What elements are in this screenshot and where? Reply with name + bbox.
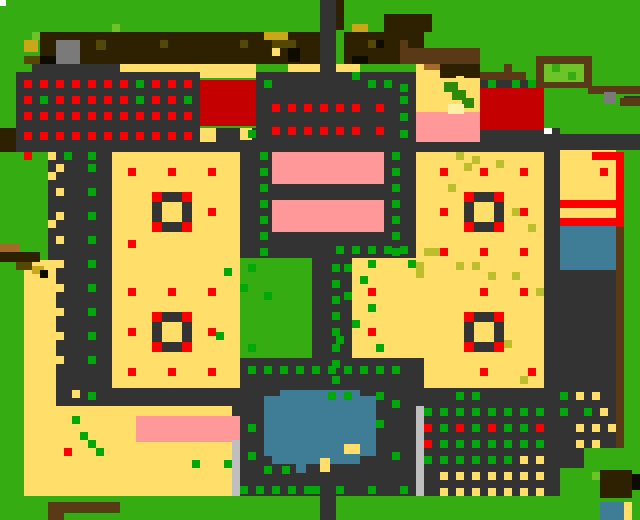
- map-tile: [48, 316, 56, 324]
- map-tile: [88, 188, 96, 196]
- map-tile: [424, 456, 432, 464]
- map-tile: [632, 474, 640, 490]
- map-tile: [456, 456, 464, 464]
- map-tile: [184, 112, 192, 120]
- map-tile: [368, 246, 376, 254]
- map-tile: [494, 342, 504, 352]
- map-tile: [120, 132, 128, 140]
- map-tile: [0, 0, 6, 6]
- map-tile: [72, 112, 80, 120]
- map-tile: [416, 406, 424, 496]
- map-tile: [24, 112, 32, 120]
- map-tile: [272, 456, 360, 464]
- map-tile: [620, 98, 640, 106]
- map-tile: [224, 268, 232, 276]
- map-tile: [472, 456, 480, 464]
- map-tile: [472, 472, 480, 480]
- map-tile: [440, 248, 448, 256]
- map-tile: [474, 322, 494, 342]
- map-tile: [560, 134, 640, 150]
- map-tile: [360, 366, 368, 374]
- map-tile: [392, 400, 400, 408]
- map-tile: [72, 80, 80, 88]
- map-tile: [152, 342, 162, 352]
- map-tile: [72, 132, 80, 140]
- map-tile: [272, 48, 280, 56]
- map-tile: [472, 440, 480, 448]
- map-tile: [104, 132, 112, 140]
- map-tile: [32, 32, 40, 40]
- map-tile: [160, 406, 184, 416]
- map-tile: [376, 344, 384, 352]
- map-tile: [88, 132, 96, 140]
- map-tile: [128, 368, 136, 376]
- map-tile: [604, 92, 616, 104]
- map-tile: [592, 424, 600, 432]
- map-tile: [464, 312, 474, 322]
- map-tile: [504, 488, 512, 496]
- map-tile: [504, 64, 512, 72]
- map-tile: [152, 192, 162, 202]
- map-tile: [88, 260, 96, 268]
- map-tile: [24, 96, 32, 104]
- map-tile: [88, 308, 96, 316]
- map-tile: [136, 416, 240, 442]
- map-tile: [200, 64, 256, 78]
- map-tile: [0, 128, 16, 152]
- map-tile: [472, 262, 480, 270]
- map-tile: [344, 264, 352, 272]
- map-tile: [344, 292, 352, 300]
- map-tile: [368, 260, 376, 268]
- map-tile: [480, 368, 488, 376]
- map-tile: [440, 408, 448, 416]
- map-tile: [208, 328, 216, 336]
- map-tile: [32, 64, 120, 72]
- map-tile: [600, 502, 624, 520]
- map-tile: [24, 392, 232, 496]
- map-tile: [528, 80, 536, 88]
- map-tile: [56, 188, 64, 196]
- map-tile: [208, 168, 216, 176]
- map-tile: [464, 163, 472, 171]
- map-tile: [88, 332, 96, 340]
- map-tile: [88, 112, 96, 120]
- map-tile: [40, 132, 48, 140]
- map-tile: [304, 104, 312, 112]
- map-tile: [392, 200, 400, 208]
- map-tile: [248, 366, 256, 374]
- map-tile: [184, 132, 192, 140]
- map-tile: [192, 460, 200, 468]
- map-tile: [504, 340, 512, 348]
- map-tile: [182, 222, 192, 232]
- map-tile: [56, 80, 64, 88]
- map-tile: [184, 80, 192, 88]
- map-tile: [208, 208, 216, 216]
- map-tile: [168, 80, 176, 88]
- map-tile: [152, 132, 160, 140]
- map-tile: [280, 366, 288, 374]
- map-tile: [480, 72, 526, 80]
- map-tile: [264, 292, 272, 300]
- map-tile: [392, 452, 400, 460]
- map-tile: [376, 366, 384, 374]
- map-tile: [296, 464, 306, 473]
- map-tile: [248, 130, 256, 138]
- map-tile: [96, 40, 106, 50]
- map-tile: [256, 486, 264, 494]
- map-tile: [168, 132, 176, 140]
- map-tile: [512, 272, 520, 280]
- map-tile: [560, 408, 568, 416]
- map-tile: [216, 332, 224, 340]
- map-tile: [392, 184, 400, 192]
- map-tile: [376, 127, 384, 135]
- map-tile: [456, 472, 464, 480]
- map-tile: [488, 472, 496, 480]
- map-tile: [56, 356, 64, 364]
- map-tile: [88, 356, 96, 364]
- map-tile: [332, 328, 340, 336]
- map-tile: [368, 80, 376, 88]
- map-tile: [152, 222, 162, 232]
- map-tile: [352, 246, 360, 254]
- map-tile: [112, 24, 120, 32]
- map-tile: [152, 112, 160, 120]
- map-tile: [200, 80, 256, 126]
- map-tile: [504, 456, 512, 464]
- map-tile: [392, 366, 400, 374]
- map-tile: [128, 168, 136, 176]
- map-tile: [336, 0, 344, 30]
- map-tile: [544, 134, 560, 270]
- map-tile: [16, 262, 32, 270]
- map-tile: [494, 222, 504, 232]
- map-tile: [336, 486, 344, 494]
- map-tile: [40, 270, 48, 278]
- map-tile: [504, 440, 512, 448]
- map-tile: [0, 252, 40, 262]
- map-tile: [480, 168, 488, 176]
- map-tile: [288, 104, 296, 112]
- map-tile: [240, 284, 248, 292]
- map-tile: [24, 132, 32, 140]
- map-tile: [64, 152, 72, 160]
- map-tile: [560, 226, 616, 270]
- map-tile: [456, 152, 464, 160]
- map-tile: [260, 232, 268, 240]
- map-tile: [24, 40, 38, 52]
- map-tile: [552, 64, 560, 72]
- map-tile: [40, 112, 48, 120]
- map-tile: [56, 212, 64, 220]
- map-tile: [88, 284, 96, 292]
- map-tile: [56, 40, 80, 64]
- map-tile: [576, 424, 584, 432]
- map-tile: [182, 312, 192, 322]
- map-tile: [208, 288, 216, 296]
- map-tile: [488, 456, 496, 464]
- map-tile: [448, 184, 456, 192]
- map-tile: [536, 408, 544, 416]
- map-tile: [272, 127, 280, 135]
- map-tile: [600, 408, 608, 416]
- map-tile: [592, 392, 600, 400]
- map-tile: [128, 240, 136, 248]
- map-tile: [592, 152, 616, 160]
- map-tile: [296, 366, 304, 374]
- map-tile: [392, 248, 400, 256]
- map-tile: [248, 264, 256, 272]
- map-tile: [376, 420, 384, 428]
- map-tile: [320, 474, 336, 520]
- map-tile: [576, 392, 584, 400]
- map-tile: [352, 320, 360, 328]
- map-tile: [520, 408, 528, 416]
- map-tile: [504, 424, 512, 432]
- map-tile: [520, 488, 528, 496]
- map-tile: [448, 104, 464, 114]
- map-tile: [160, 40, 168, 48]
- map-tile: [568, 72, 576, 80]
- map-tile: [488, 408, 496, 416]
- map-tile: [264, 366, 272, 374]
- map-tile: [464, 222, 474, 232]
- map-tile: [332, 264, 340, 272]
- map-tile: [536, 472, 544, 480]
- map-tile: [592, 472, 600, 480]
- map-tile: [282, 466, 290, 474]
- map-tile: [260, 248, 268, 256]
- map-tile: [536, 488, 544, 496]
- map-tile: [40, 96, 48, 104]
- map-tile: [520, 168, 528, 176]
- map-tile: [456, 424, 464, 432]
- map-tile: [544, 270, 616, 390]
- map-tile: [456, 488, 464, 496]
- map-tile: [520, 424, 528, 432]
- map-tile: [472, 392, 480, 400]
- map-tile: [352, 24, 368, 32]
- map-tile: [608, 424, 616, 432]
- map-tile: [328, 366, 336, 374]
- map-tile: [272, 104, 280, 112]
- map-tile: [416, 262, 424, 278]
- map-tile: [80, 432, 88, 440]
- map-tile: [272, 152, 384, 184]
- map-tile: [260, 152, 268, 160]
- map-tile: [424, 424, 432, 432]
- map-tile: [440, 208, 448, 216]
- map-tile: [312, 366, 320, 374]
- map-tile: [152, 312, 162, 322]
- map-tile: [400, 48, 480, 64]
- map-tile: [320, 127, 328, 135]
- map-tile: [616, 152, 624, 227]
- map-tile: [520, 376, 528, 384]
- map-tile: [332, 312, 340, 320]
- map-tile: [112, 152, 240, 390]
- map-tile: [600, 168, 608, 176]
- map-tile: [120, 80, 128, 88]
- map-tile: [472, 408, 480, 416]
- map-tile: [260, 168, 268, 176]
- map-tile: [400, 96, 408, 104]
- map-tile: [494, 312, 504, 322]
- map-tile: [288, 486, 296, 494]
- map-tile: [520, 472, 528, 480]
- map-tile: [352, 127, 360, 135]
- map-tile: [260, 216, 268, 224]
- map-tile: [472, 156, 480, 164]
- map-tile: [24, 152, 32, 160]
- map-tile: [232, 440, 240, 496]
- map-tile: [260, 184, 268, 192]
- map-tile: [376, 392, 384, 400]
- map-tile: [336, 336, 344, 344]
- map-tile: [248, 344, 256, 352]
- map-tile: [248, 452, 256, 460]
- map-tile: [240, 40, 248, 48]
- map-tile: [480, 288, 488, 296]
- map-tile: [336, 127, 344, 135]
- map-tile: [182, 192, 192, 202]
- map-tile: [472, 424, 480, 432]
- map-tile: [288, 48, 300, 62]
- map-tile: [392, 216, 400, 224]
- map-tile: [72, 416, 80, 424]
- map-tile: [288, 64, 320, 72]
- map-tile: [616, 388, 624, 448]
- map-tile: [136, 96, 144, 104]
- map-tile: [456, 408, 464, 416]
- map-tile: [56, 308, 64, 316]
- map-tile: [96, 448, 104, 456]
- map-tile: [152, 96, 160, 104]
- map-tile: [520, 440, 528, 448]
- map-tile: [400, 130, 408, 138]
- map-tile: [440, 472, 448, 480]
- map-tile: [136, 80, 144, 88]
- map-tile: [536, 456, 544, 464]
- map-tile: [48, 364, 56, 372]
- map-tile: [520, 288, 528, 296]
- map-tile: [168, 96, 176, 104]
- map-tile: [56, 132, 64, 140]
- map-tile: [600, 470, 632, 498]
- map-tile: [88, 236, 96, 244]
- map-tile: [264, 32, 288, 40]
- map-tile: [56, 388, 240, 406]
- map-tile: [352, 72, 360, 80]
- map-tile: [424, 64, 440, 70]
- map-tile: [488, 440, 496, 448]
- map-tile: [56, 260, 64, 268]
- map-tile: [376, 40, 384, 48]
- map-tile: [352, 56, 368, 64]
- map-tile: [584, 448, 640, 468]
- map-tile: [456, 440, 464, 448]
- map-tile: [560, 200, 616, 208]
- map-tile: [480, 248, 488, 256]
- map-tile: [488, 80, 496, 88]
- map-tile: [512, 80, 520, 88]
- map-tile: [304, 486, 312, 494]
- map-tile: [48, 268, 56, 276]
- map-tile: [536, 82, 592, 88]
- map-tile: [48, 172, 56, 180]
- map-tile: [392, 232, 400, 240]
- map-tile: [384, 246, 392, 254]
- map-tile: [504, 472, 512, 480]
- map-tile: [400, 84, 408, 92]
- map-tile: [560, 208, 616, 218]
- map-tile: [544, 128, 552, 134]
- map-tile: [536, 288, 544, 296]
- map-tile: [272, 200, 384, 232]
- map-tile: [56, 332, 64, 340]
- map-tile: [24, 260, 56, 392]
- map-tile: [440, 456, 448, 464]
- map-tile: [440, 440, 448, 448]
- map-tile: [520, 248, 528, 256]
- map-tile: [182, 342, 192, 352]
- map-tile: [384, 14, 432, 32]
- map-tile: [168, 112, 176, 120]
- map-tile: [528, 224, 536, 232]
- map-tile: [488, 488, 496, 496]
- map-tile: [488, 272, 496, 280]
- map-tile: [40, 80, 48, 88]
- map-tile: [424, 408, 432, 416]
- map-tile: [72, 390, 80, 398]
- map-tile: [464, 192, 474, 202]
- map-tile: [320, 458, 330, 472]
- map-tile: [408, 260, 416, 268]
- map-tile: [472, 488, 480, 496]
- map-tile: [104, 112, 112, 120]
- map-tile: [424, 440, 432, 448]
- map-tile: [512, 208, 520, 216]
- map-tile: [416, 112, 480, 142]
- map-tile: [104, 96, 112, 104]
- map-tile: [184, 96, 192, 104]
- map-tile: [88, 440, 96, 448]
- map-tile: [352, 104, 360, 112]
- map-tile: [336, 104, 344, 112]
- map-tile: [248, 424, 256, 432]
- map-tile: [520, 208, 528, 216]
- map-tile: [392, 168, 400, 176]
- map-tile: [264, 466, 272, 474]
- map-tile: [48, 502, 64, 520]
- map-tile: [208, 368, 216, 376]
- map-tile: [88, 392, 96, 400]
- map-tile: [56, 164, 64, 172]
- map-tile: [332, 376, 340, 384]
- map-tile: [480, 88, 544, 130]
- map-tile: [344, 444, 360, 454]
- map-tile: [88, 164, 96, 172]
- map-tile: [120, 112, 128, 120]
- game-map[interactable]: [0, 0, 640, 520]
- map-tile: [464, 342, 474, 352]
- map-tile: [384, 80, 392, 88]
- map-tile: [576, 440, 584, 448]
- map-tile: [344, 366, 352, 374]
- map-tile: [624, 502, 632, 520]
